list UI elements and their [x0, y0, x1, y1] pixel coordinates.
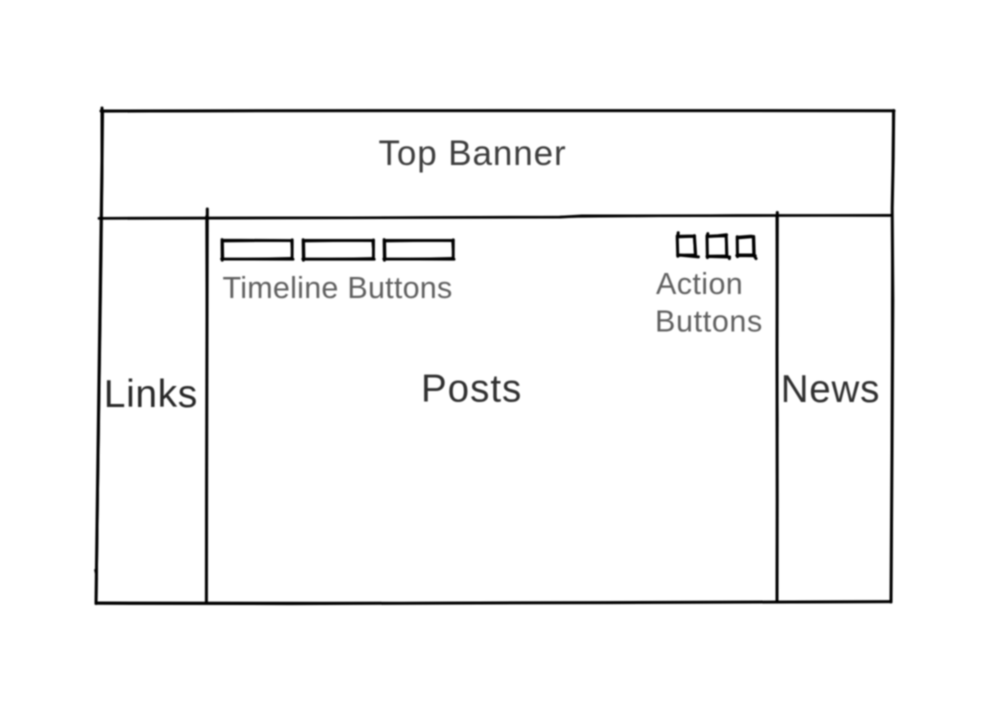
svg-text:Buttons: Buttons [655, 305, 763, 339]
svg-text:Links: Links [104, 373, 198, 416]
svg-text:Action: Action [656, 267, 743, 301]
svg-text:News: News [781, 368, 880, 411]
svg-text:Timeline Buttons: Timeline Buttons [223, 271, 453, 305]
svg-text:Top Banner: Top Banner [379, 134, 567, 173]
svg-text:Posts: Posts [421, 368, 522, 411]
